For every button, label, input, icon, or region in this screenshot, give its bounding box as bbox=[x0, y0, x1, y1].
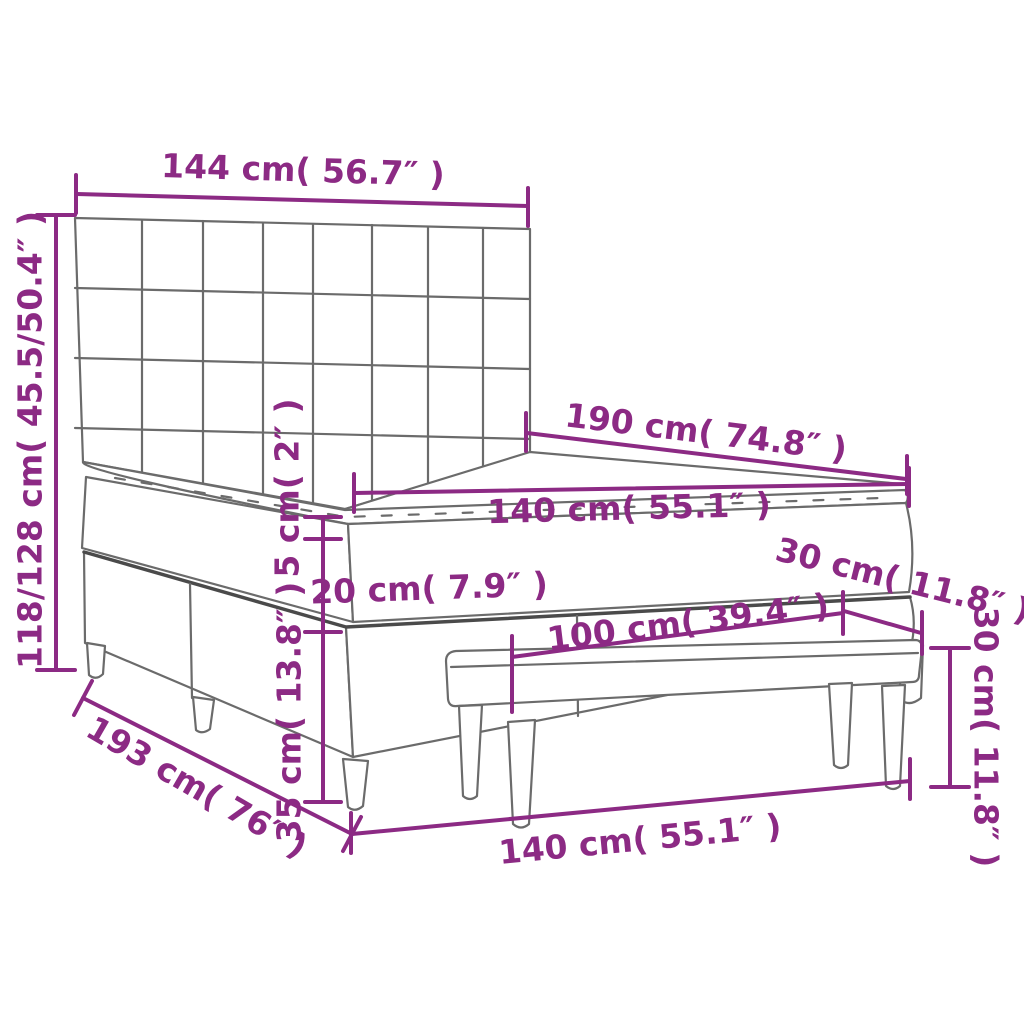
bench bbox=[446, 640, 922, 828]
bench-leg-front-left bbox=[508, 720, 535, 828]
dim-overall-height: 118/128 cm( 45.5/50.4″ ) bbox=[11, 211, 76, 670]
bed-leg-front-corner bbox=[343, 759, 368, 810]
bed-dimension-diagram: 144 cm( 56.7″ ) 118/128 cm( 45.5/50.4″ )… bbox=[0, 0, 1024, 1024]
dim-topper-thickness-label: 5 cm( 2″ ) bbox=[268, 398, 307, 577]
dimension-line bbox=[77, 194, 528, 206]
dim-headboard-width-label: 144 cm( 56.7″ ) bbox=[161, 146, 446, 194]
dim-overall-height-label: 118/128 cm( 45.5/50.4″ ) bbox=[11, 211, 50, 669]
bed-leg-back-left bbox=[87, 643, 105, 678]
dim-mattress-thickness-label: 20 cm( 7.9″ ) bbox=[310, 564, 549, 611]
bed-leg-mid-left bbox=[193, 697, 214, 732]
dim-mattress-width-label: 140 cm( 55.1″ ) bbox=[487, 485, 772, 531]
dim-headboard-width: 144 cm( 56.7″ ) bbox=[76, 146, 528, 226]
bench-leg-front-right bbox=[882, 685, 905, 789]
dim-bench-height-label: 30 cm( 11.8″ ) bbox=[967, 607, 1006, 868]
bench-leg-back-right bbox=[829, 683, 852, 768]
dim-floor-width: 140 cm( 55.1″ ) bbox=[351, 759, 910, 872]
dim-bench-height: 30 cm( 11.8″ ) bbox=[931, 607, 1006, 868]
bench-leg-back-left bbox=[459, 705, 482, 799]
tick-mark bbox=[74, 681, 92, 715]
